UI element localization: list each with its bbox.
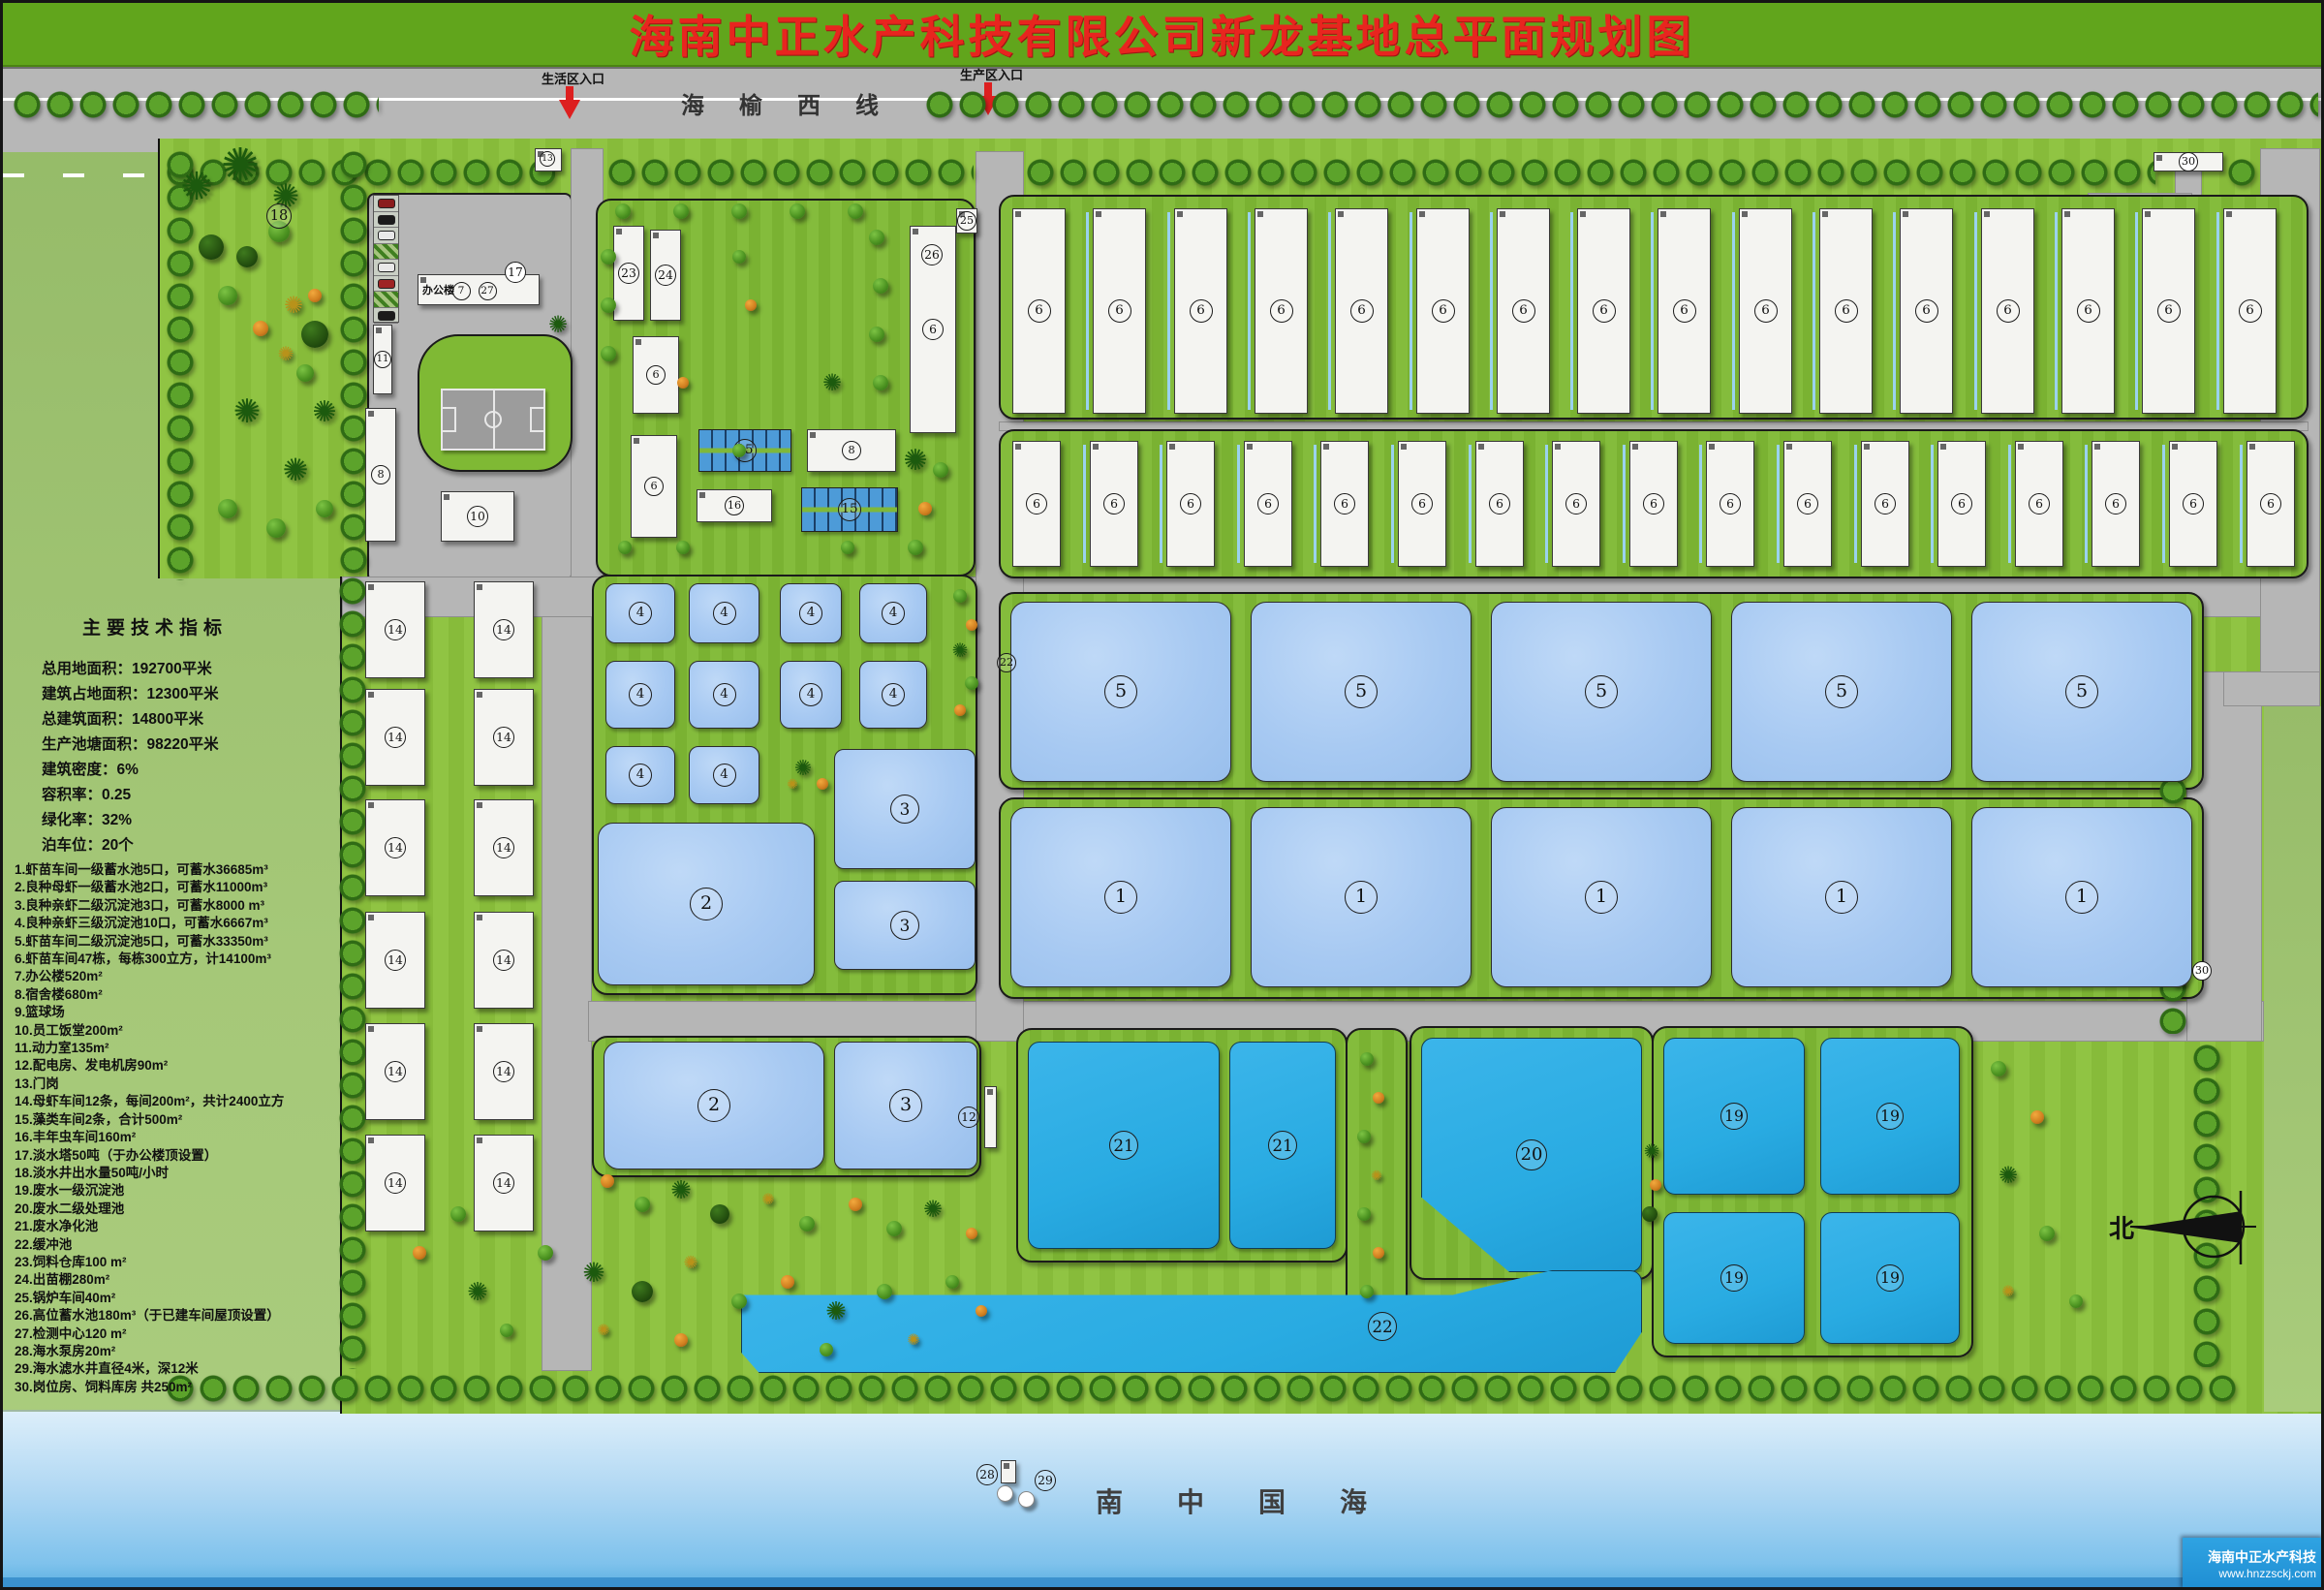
indicators-title: 主要技术指标 <box>82 613 361 639</box>
label-19: 19 <box>1876 1264 1904 1292</box>
shrub-icon <box>954 704 966 716</box>
tree-icon <box>908 540 923 555</box>
car-icon <box>378 215 395 225</box>
label-19: 19 <box>1876 1103 1904 1130</box>
tree-icon <box>848 203 863 219</box>
palm-tree-icon: ✺ <box>546 313 570 336</box>
tree-icon <box>869 327 884 342</box>
tree-row <box>605 154 974 191</box>
palm-tree-icon: ✺ <box>231 395 263 428</box>
tree-icon <box>236 246 258 267</box>
seawater-well-icon <box>997 1485 1013 1502</box>
tree-row <box>1024 154 2155 191</box>
compass-north-label: 北 <box>2109 1214 2134 1243</box>
label-14: 14 <box>493 950 514 971</box>
label-8: 8 <box>371 465 390 484</box>
indicators-lines: 总用地面积：192700平米建筑占地面积：12300平米总建筑面积：14800平… <box>42 657 361 858</box>
parking-stall <box>374 244 398 261</box>
indicator-line: 总建筑面积：14800平米 <box>42 707 361 733</box>
label-14: 14 <box>493 619 514 640</box>
tree-row <box>11 88 379 121</box>
label-28: 28 <box>976 1464 998 1485</box>
water-channel <box>1086 212 1089 410</box>
label-6: 6 <box>1593 299 1616 323</box>
label-14: 14 <box>385 950 406 971</box>
label-14: 14 <box>385 1172 406 1194</box>
label-4: 4 <box>629 602 652 625</box>
shrub-icon <box>1373 1092 1384 1104</box>
tree-icon <box>731 1294 747 1309</box>
legend-item: 12.配电房、发电机房90m² <box>15 1057 349 1075</box>
tree-row <box>164 1367 2239 1410</box>
palm-tree-icon: ✺ <box>580 1259 607 1286</box>
legend-item: 8.宿舍楼680m² <box>15 986 349 1004</box>
label-6: 6 <box>1875 493 1896 514</box>
label-6: 6 <box>2157 299 2181 323</box>
label-22: 22 <box>997 653 1016 672</box>
tree-icon <box>538 1245 553 1261</box>
label-14: 14 <box>493 1061 514 1082</box>
label-6: 6 <box>2260 493 2281 514</box>
tree-icon <box>601 346 616 361</box>
tree-icon <box>635 1197 650 1212</box>
palm-tree-icon: ✺ <box>596 1323 611 1338</box>
parked-car <box>374 276 398 293</box>
water-channel <box>2055 212 2058 410</box>
car-icon <box>378 311 395 321</box>
tree-icon <box>1360 1052 1374 1066</box>
legend-item: 23.饲料仓库100 m² <box>15 1254 349 1271</box>
label-6: 6 <box>1026 493 1047 514</box>
label-6: 6 <box>1180 493 1201 514</box>
shrub-icon <box>918 502 932 515</box>
label-4: 4 <box>799 683 822 706</box>
parked-car <box>374 260 398 276</box>
water-channel <box>1651 212 1654 410</box>
palm-tree-icon: ✺ <box>786 777 799 791</box>
water-channel <box>1237 445 1240 563</box>
water-channel <box>1167 212 1170 410</box>
label-14: 14 <box>385 1061 406 1082</box>
tree-icon <box>965 676 978 690</box>
tree-icon <box>673 203 689 219</box>
palm-tree-icon: ✺ <box>950 640 970 660</box>
label-14: 14 <box>493 837 514 858</box>
parked-car <box>374 308 398 325</box>
label-19: 19 <box>1720 1264 1748 1292</box>
tree-icon <box>953 589 967 603</box>
palm-tree-icon: ✺ <box>217 142 263 189</box>
watermark: 海南中正水产科技 www.hnzzsckj.com <box>2183 1538 2324 1590</box>
label-6: 6 <box>1797 493 1818 514</box>
shrub-icon <box>745 299 757 311</box>
label-14: 14 <box>385 727 406 748</box>
legend-item: 29.海水滤水井直径4米，深12米 <box>15 1360 349 1378</box>
tree-icon <box>945 1275 959 1289</box>
label-19: 19 <box>1720 1103 1748 1130</box>
legend-item: 15.藻类车间2条，合计500m² <box>15 1111 349 1129</box>
road-name: 海榆西线 <box>681 86 914 120</box>
parked-car <box>374 196 398 212</box>
legend-item: 5.虾苗车间二级沉淀池5口，可蓄水33350m³ <box>15 933 349 951</box>
parked-car <box>374 228 398 244</box>
tree-icon <box>886 1221 902 1236</box>
shrub-icon <box>2030 1110 2044 1124</box>
label-6: 6 <box>1103 493 1125 514</box>
water-channel <box>2135 212 2138 410</box>
water-channel <box>2008 445 2011 563</box>
label-5: 5 <box>1825 675 1858 708</box>
water-channel <box>1248 212 1251 410</box>
title-banner: 海南中正水产科技有限公司新龙基地总平面规划图 <box>3 3 2321 67</box>
master-plan-canvas: 海南中正水产科技有限公司新龙基地总平面规划图 海榆西线 生活区入口生产区入口 1… <box>0 0 2324 1590</box>
shrub-icon <box>677 377 689 389</box>
indicator-line: 绿化率：32% <box>42 808 361 833</box>
legend-item: 20.废水二级处理池 <box>15 1200 349 1218</box>
tree-icon <box>790 203 805 219</box>
label-6: 6 <box>1754 299 1778 323</box>
shrub-icon <box>781 1275 794 1289</box>
legend-item: 26.高位蓄水池180m³（于已建车间屋顶设置） <box>15 1307 349 1325</box>
water-channel <box>1623 445 1626 563</box>
legend-item: 4.良种亲虾三级沉淀池10口，可蓄水6667m³ <box>15 915 349 932</box>
label-5: 5 <box>2065 675 2098 708</box>
label-4: 4 <box>713 602 736 625</box>
label-4: 4 <box>799 602 822 625</box>
legend-item: 7.办公楼520m² <box>15 968 349 985</box>
shrub-icon <box>253 321 268 336</box>
palm-tree-icon: ✺ <box>1370 1169 1383 1182</box>
label-5: 5 <box>1104 675 1137 708</box>
entrance-生活区入口: 生活区入口 <box>542 69 658 87</box>
entrance-label: 生活区入口 <box>542 69 658 87</box>
label-22: 22 <box>1368 1312 1397 1341</box>
label-5: 5 <box>1345 675 1378 708</box>
tree-row <box>923 88 2318 121</box>
court-key-left <box>441 407 456 432</box>
legend-item: 18.淡水井出水量50吨/小时 <box>15 1165 349 1182</box>
label-6: 6 <box>1190 299 1213 323</box>
legend-item: 22.缓冲池 <box>15 1236 349 1254</box>
legend-item: 2.良种母虾一级蓄水池2口，可蓄水11000m³ <box>15 879 349 896</box>
label-6: 6 <box>2029 493 2050 514</box>
watermark-url: www.hnzzsckj.com <box>2218 1567 2316 1580</box>
tree-icon <box>732 250 746 264</box>
label-13: 13 <box>540 151 555 167</box>
building <box>984 1086 997 1148</box>
label-24: 24 <box>655 265 676 286</box>
label-27: 27 <box>479 282 497 300</box>
tree-icon <box>799 1216 815 1231</box>
basketball-court <box>441 389 545 451</box>
tree-icon <box>301 321 328 348</box>
label-6: 6 <box>1673 299 1696 323</box>
legend-item: 1.虾苗车间一级蓄水池5口，可蓄水36685m³ <box>15 861 349 879</box>
tree-icon <box>933 462 948 478</box>
tree-row <box>2225 154 2260 191</box>
shrub-icon <box>849 1198 862 1211</box>
entrance-label: 生产区入口 <box>960 65 1076 83</box>
water-channel <box>1410 212 1412 410</box>
legend-item: 19.废水一级沉淀池 <box>15 1182 349 1200</box>
palm-tree-icon: ✺ <box>821 371 844 394</box>
water-channel <box>1931 445 1934 563</box>
label-6: 6 <box>1512 299 1535 323</box>
label-5: 5 <box>1585 675 1618 708</box>
palm-tree-icon: ✺ <box>282 294 305 317</box>
tree-icon <box>450 1206 466 1222</box>
tree-icon <box>1991 1061 2006 1076</box>
label-4: 4 <box>629 764 652 787</box>
label-6: 6 <box>1432 299 1455 323</box>
label-7: 7 <box>452 282 471 300</box>
water-channel <box>1854 445 1857 563</box>
water-channel <box>2085 445 2088 563</box>
label-6: 6 <box>1720 493 1741 514</box>
label-4: 4 <box>629 683 652 706</box>
label-15: 15 <box>838 498 861 521</box>
legend-item: 9.篮球场 <box>15 1004 349 1021</box>
shrub-icon <box>817 778 828 790</box>
tree-icon <box>869 230 884 245</box>
tree-icon <box>1360 1285 1374 1298</box>
label-16: 16 <box>725 496 744 515</box>
water-channel <box>1469 445 1472 563</box>
palm-tree-icon: ✺ <box>1642 1141 1661 1161</box>
car-icon <box>378 279 395 289</box>
parking-lot <box>373 195 399 323</box>
label-2: 2 <box>690 888 723 920</box>
palm-tree-icon: ✺ <box>901 446 930 475</box>
label-8: 8 <box>842 441 861 460</box>
palm-tree-icon: ✺ <box>760 1192 776 1207</box>
label-10: 10 <box>467 506 488 527</box>
legend-item: 28.海水泵房20m² <box>15 1343 349 1360</box>
tree-icon <box>266 518 286 538</box>
label-21: 21 <box>1109 1131 1138 1160</box>
palm-tree-icon: ✺ <box>906 1332 921 1348</box>
shrub-icon <box>413 1246 426 1260</box>
label-21: 21 <box>1268 1131 1297 1160</box>
indicator-line: 泊车位：20个 <box>42 833 361 858</box>
water-channel <box>1777 445 1780 563</box>
label-1: 1 <box>2065 881 2098 914</box>
water-channel <box>1974 212 1977 410</box>
label-6: 6 <box>1028 299 1051 323</box>
palm-tree-icon: ✺ <box>465 1279 490 1304</box>
label-14: 14 <box>493 727 514 748</box>
road <box>2223 671 2320 706</box>
label-29: 29 <box>1035 1470 1056 1491</box>
label-6: 6 <box>1334 493 1355 514</box>
court-center-circle <box>484 411 502 428</box>
car-icon <box>378 199 395 208</box>
boundary-fence <box>158 139 160 578</box>
label-1: 1 <box>1825 881 1858 914</box>
label-4: 4 <box>713 764 736 787</box>
indicator-line: 容积率：0.25 <box>42 783 361 808</box>
parked-car <box>374 212 398 229</box>
tree-icon <box>2069 1294 2083 1308</box>
label-6: 6 <box>1489 493 1510 514</box>
water-channel <box>1813 212 1815 410</box>
tree-icon <box>296 364 314 382</box>
tree-icon <box>820 1343 833 1356</box>
court-key-right <box>530 407 545 432</box>
label-14: 14 <box>385 619 406 640</box>
entrance-arrow-icon <box>559 100 580 119</box>
technical-indicators-panel: 主要技术指标 总用地面积：192700平米建筑占地面积：12300平米总建筑面积… <box>42 613 361 858</box>
label-14: 14 <box>493 1172 514 1194</box>
water-channel <box>1545 445 1548 563</box>
car-icon <box>378 231 395 240</box>
tree-icon <box>873 375 888 390</box>
legend-item: 21.废水净化池 <box>15 1218 349 1235</box>
palm-tree-icon: ✺ <box>310 397 339 426</box>
shrub-icon <box>966 619 977 631</box>
label-17: 17 <box>505 262 526 283</box>
water-channel <box>1570 212 1573 410</box>
label-6: 6 <box>2239 299 2262 323</box>
water-channel <box>1490 212 1493 410</box>
shrub-icon <box>601 1174 614 1188</box>
building <box>1001 1460 1016 1483</box>
water-channel <box>1699 445 1702 563</box>
water-channel <box>2216 212 2219 410</box>
indicator-line: 建筑占地面积：12300平米 <box>42 682 361 707</box>
palm-tree-icon: ✺ <box>668 1177 694 1202</box>
indicator-line: 建筑密度：6% <box>42 758 361 783</box>
indicator-line: 生产池塘面积：98220平米 <box>42 733 361 758</box>
watermark-company: 海南中正水产科技 <box>2208 1547 2316 1567</box>
label-25: 25 <box>957 211 976 231</box>
tree-icon <box>199 234 224 260</box>
shrub-icon <box>1650 1179 1661 1191</box>
shrub-icon <box>1373 1247 1384 1259</box>
page-title: 海南中正水产科技有限公司新龙基地总平面规划图 <box>630 2 1695 66</box>
water-channel <box>2162 445 2165 563</box>
label-6: 6 <box>2077 299 2100 323</box>
legend-item: 30.岗位房、饲料库房 共250m² <box>15 1379 349 1396</box>
tree-icon <box>218 286 237 305</box>
legend-item: 3.良种亲虾二级沉淀池3口，可蓄水8000 m³ <box>15 897 349 915</box>
tree-icon <box>618 541 632 554</box>
legend-item: 25.锅炉车间40m² <box>15 1290 349 1307</box>
entrance-生产区入口: 生产区入口 <box>960 65 1076 83</box>
outside-green <box>2264 706 2324 1412</box>
water-channel <box>1893 212 1896 410</box>
car-icon <box>378 263 395 272</box>
legend-item: 6.虾苗车间47栋，每栋300立方，计14100m³ <box>15 951 349 968</box>
sea-name: 南中国海 <box>1096 1481 1421 1520</box>
label-6: 6 <box>1915 299 1938 323</box>
label-6: 6 <box>1997 299 2020 323</box>
label-6: 6 <box>2183 493 2204 514</box>
label-6: 6 <box>1835 299 1858 323</box>
palm-tree-icon: ✺ <box>682 1254 699 1271</box>
label-3: 3 <box>889 1089 922 1122</box>
label-6: 6 <box>1270 299 1293 323</box>
legend-item: 24.出苗棚280m² <box>15 1271 349 1289</box>
label-6: 6 <box>1257 493 1279 514</box>
tree-icon <box>2039 1226 2055 1241</box>
tree-icon <box>632 1281 653 1302</box>
label-2: 2 <box>697 1089 730 1122</box>
palm-tree-icon: ✺ <box>921 1198 945 1221</box>
label-3: 3 <box>890 911 919 940</box>
label-23: 23 <box>618 263 639 284</box>
legend-item: 16.丰年虫车间160m² <box>15 1129 349 1146</box>
label-6: 6 <box>1565 493 1587 514</box>
tree-icon <box>676 541 690 554</box>
label-6: 6 <box>646 365 666 385</box>
label-1: 1 <box>1585 881 1618 914</box>
shrub-icon <box>308 289 322 302</box>
label-3: 3 <box>890 795 919 824</box>
water-channel <box>1083 445 1086 563</box>
tree-icon <box>601 249 616 265</box>
tree-icon <box>841 541 854 554</box>
compass-icon: 北 <box>2095 1183 2318 1276</box>
palm-tree-icon: ✺ <box>276 344 295 363</box>
palm-tree-icon: ✺ <box>823 1298 849 1324</box>
tree-icon <box>873 278 888 294</box>
label-30: 30 <box>2179 152 2198 171</box>
tree-icon <box>601 297 616 313</box>
legend-list: 1.虾苗车间一级蓄水池5口，可蓄水36685m³2.良种母虾一级蓄水池2口，可蓄… <box>15 861 349 1396</box>
tree-icon <box>500 1324 513 1337</box>
label-6: 6 <box>2105 493 2126 514</box>
tree-icon <box>1357 1207 1371 1221</box>
tree-icon <box>710 1204 729 1224</box>
label-14: 14 <box>385 837 406 858</box>
water-channel <box>2240 445 2243 563</box>
label-6: 6 <box>1951 493 1972 514</box>
legend-item: 10.员工饭堂200m² <box>15 1022 349 1040</box>
label-4: 4 <box>882 683 905 706</box>
label-6: 6 <box>1108 299 1131 323</box>
label-11: 11 <box>374 351 391 368</box>
label-18: 18 <box>266 203 292 229</box>
palm-tree-icon: ✺ <box>177 168 216 206</box>
legend-item: 11.动力室135m² <box>15 1040 349 1057</box>
label-20: 20 <box>1516 1139 1547 1170</box>
label-26: 26 <box>921 244 943 265</box>
tree-icon <box>877 1284 892 1299</box>
label-1: 1 <box>1104 881 1137 914</box>
label-4: 4 <box>882 602 905 625</box>
tree-icon <box>731 203 747 219</box>
tree-icon <box>316 500 333 517</box>
label-30: 30 <box>2192 961 2212 981</box>
label-6: 6 <box>1350 299 1374 323</box>
tree-row <box>164 148 197 580</box>
legend-item: 17.淡水塔50吨（于办公楼顶设置） <box>15 1147 349 1165</box>
office-building-label: 办公楼 <box>422 282 454 297</box>
tree-icon <box>732 444 746 457</box>
label-6: 6 <box>1643 493 1664 514</box>
legend-item: 14.母虾车间12条，每间200m²，共计2400立方 <box>15 1093 349 1110</box>
palm-tree-icon: ✺ <box>1997 1164 2020 1187</box>
tree-icon <box>615 203 631 219</box>
water-channel <box>1328 212 1331 410</box>
water-channel <box>1160 445 1162 563</box>
label-12: 12 <box>958 1107 979 1128</box>
water-channel <box>1391 445 1394 563</box>
tree-icon <box>1357 1130 1371 1143</box>
label-6: 6 <box>922 319 944 340</box>
palm-tree-icon: ✺ <box>280 454 311 485</box>
